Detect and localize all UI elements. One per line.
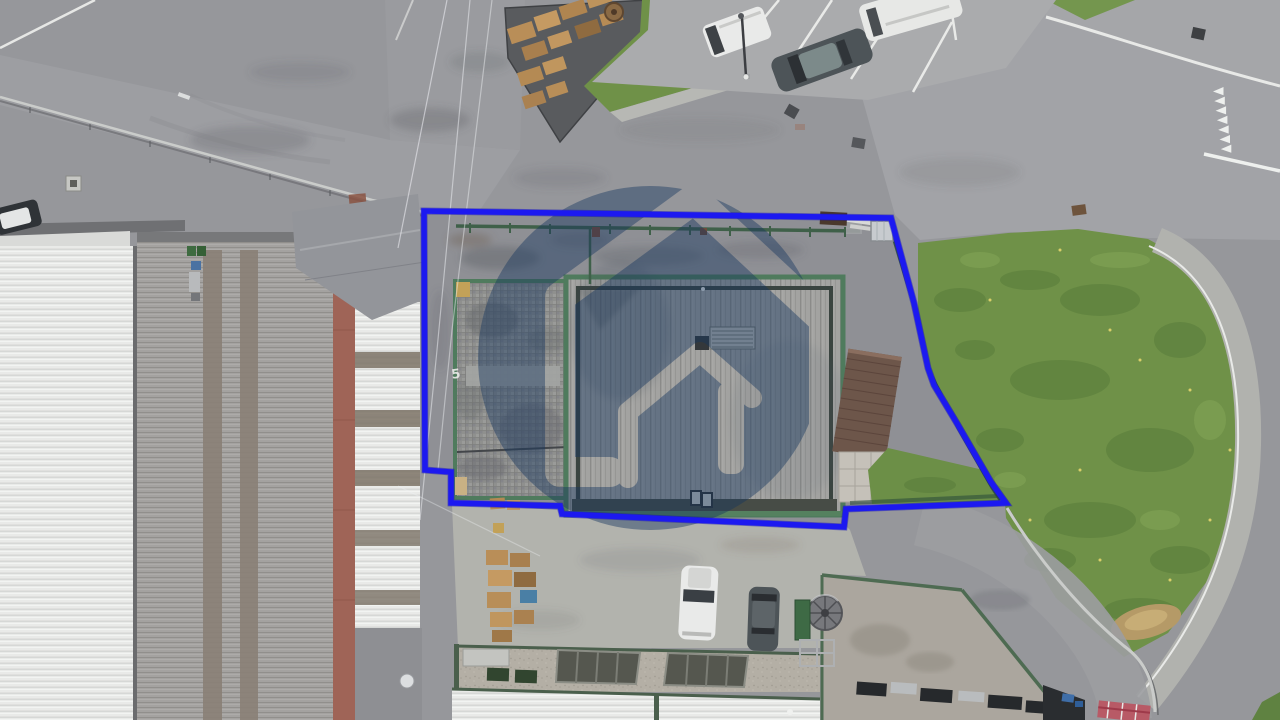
cable-coil-center xyxy=(611,9,617,15)
roof-gap xyxy=(133,246,137,720)
roof-vent-green xyxy=(487,668,509,682)
aerial-photo: 5 xyxy=(0,0,1280,720)
satellite-dish xyxy=(400,674,414,688)
grass-patch-shade xyxy=(904,477,956,493)
left-building-complex xyxy=(0,194,428,720)
rooftop-unit xyxy=(463,649,509,666)
blue-crate xyxy=(520,590,537,603)
lower-wall-area xyxy=(355,628,422,720)
skylight-stripe xyxy=(203,250,222,720)
yard-dark-car xyxy=(747,586,780,651)
banded-roof xyxy=(355,296,420,630)
roof-divider xyxy=(654,694,659,720)
roof-dot xyxy=(787,709,793,715)
watermark-logo xyxy=(478,186,822,530)
gray-warehouse-roof xyxy=(137,232,333,720)
tan-wall xyxy=(455,477,467,495)
driveway-stain xyxy=(970,590,1030,610)
skylight-panel xyxy=(556,650,640,684)
spiral-staircase xyxy=(808,595,842,630)
roof-vent-green xyxy=(515,670,537,684)
skylight-stripe xyxy=(240,250,258,720)
white-warehouse-roof xyxy=(0,246,133,720)
skylight-panel xyxy=(664,653,748,687)
flat-roof-edge xyxy=(454,644,459,692)
blue-object xyxy=(1062,693,1075,703)
blue-object xyxy=(1075,701,1083,707)
watermark-circle xyxy=(478,186,822,530)
yard-white-van xyxy=(678,565,719,641)
green-machine xyxy=(795,600,810,640)
terracotta-roof-strip xyxy=(333,252,355,720)
